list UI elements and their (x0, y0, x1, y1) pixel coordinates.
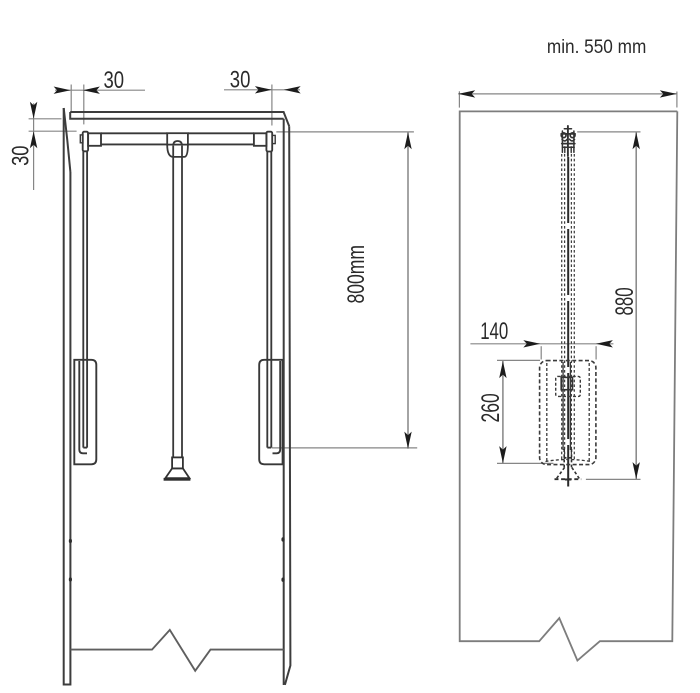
svg-text:min. 550 mm: min. 550 mm (547, 37, 646, 58)
svg-text:30: 30 (104, 68, 125, 94)
svg-text:30: 30 (7, 146, 34, 166)
svg-text:140: 140 (480, 319, 508, 345)
svg-text:30: 30 (230, 68, 251, 94)
svg-text:260: 260 (477, 393, 505, 422)
svg-text:880: 880 (612, 287, 639, 315)
svg-text:800mm: 800mm (343, 245, 370, 303)
